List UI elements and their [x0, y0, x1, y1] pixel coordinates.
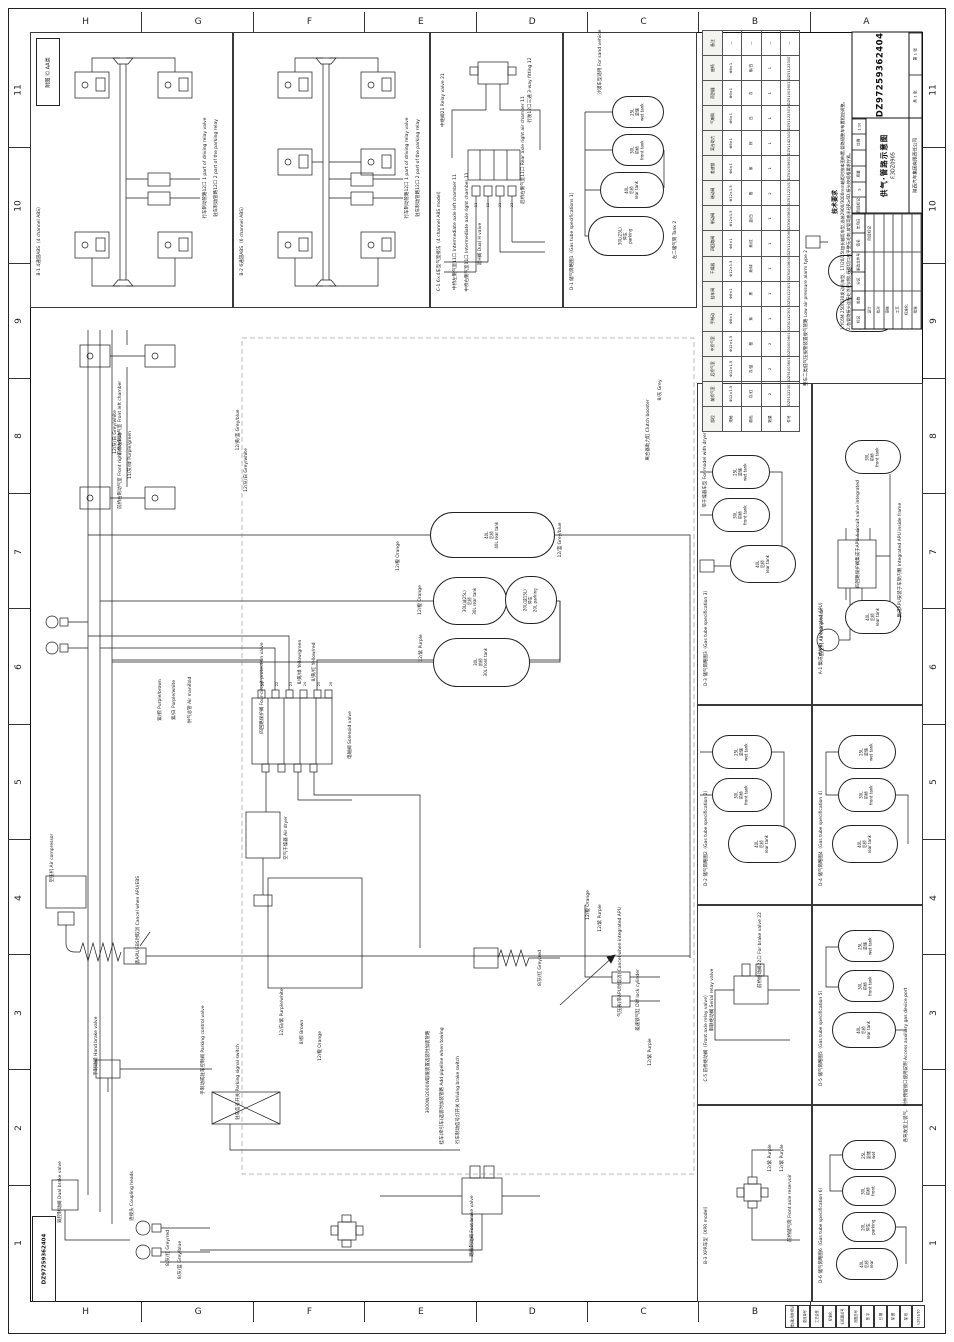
role-cell	[893, 214, 901, 252]
air-tank: 40L后桥rear tank	[728, 825, 796, 863]
parts-table-cell: Φ6×1	[723, 106, 742, 131]
parts-table-cell: Φ6×1	[723, 81, 742, 106]
strip-cell-label: 标准化	[827, 1312, 832, 1322]
parts-table-cell: Φ12×1.5	[723, 181, 742, 206]
strip-cell-label: 底图总号	[852, 1310, 857, 1323]
parts-table-cell: 灰/蓝	[742, 356, 761, 381]
parts-table-cell: 1	[761, 256, 780, 281]
parts-table-cell: 制动阀	[703, 206, 723, 231]
air-tank-label: 30L前桥front tank	[860, 785, 874, 805]
role-rows: 设计阶段标记校对审核工艺标准化批准	[866, 214, 922, 329]
panel-label-D-4: D-4 储气筒略图4（Gas tube specification 4）	[818, 788, 824, 886]
air-tank: 25L湿储wet tank	[838, 930, 894, 962]
parts-table-cell: 气喇叭	[703, 106, 723, 131]
rev-label: 更改文件号	[853, 252, 865, 271]
schematic-label: 12	[486, 203, 490, 207]
legend-text: 附图 Ⓒ AA类	[45, 57, 52, 87]
air-tank: 30L前桥front	[842, 1176, 896, 1206]
role-cell: 批准	[912, 290, 920, 328]
role-row: 工艺	[893, 214, 902, 329]
panel-label-D-3: D-3 储气筒略图3（Gas tube specification 3）	[703, 588, 709, 686]
schematic-label: 8/灰/红 Grey/red	[537, 950, 543, 986]
schematic-label: 挂车(牵引车)选装时加装管路 Add pipeline when towing	[439, 1027, 445, 1144]
parts-table-cell: DZ9114230101	[780, 306, 799, 331]
parts-table-cell: 1	[761, 81, 780, 106]
parts-table-cell: DZ9100360132	[780, 81, 799, 106]
schematic-label: 后桥右侧气室11口 Rear axle right air chamber 11	[520, 96, 526, 204]
parts-table-grid: 部位前桥气室后桥气室中桥气室手制动挂车阀干燥器四回路阀制动阀继动阀差速锁离合助力…	[702, 30, 800, 432]
schematic-label: 12/黄/蓝 Grey/blue	[235, 409, 241, 450]
schematic-label: 紫/白 Purple/white	[171, 680, 177, 720]
parts-table-cell: 中桥气室	[703, 331, 723, 356]
mid-value: 1:10	[853, 118, 866, 134]
strip-cell-label: 描 图	[891, 1313, 896, 1320]
parts-table-cell: Φ8×1	[723, 281, 742, 306]
air-tank-label: 25L湿储wet	[862, 1151, 876, 1159]
strip-cell-label: 签 字	[865, 1313, 870, 1320]
parts-table-cell: 2	[761, 331, 780, 356]
schematic-label: 行车制动管路12口 1 part of driving relay valve	[202, 117, 208, 218]
air-tank-label: 30L(25L)停车parking	[619, 227, 633, 245]
air-tank-label: 40L后桥rear tank	[866, 608, 880, 626]
schematic-label: 中桥左侧气室11口 Intermediate axle left chamber…	[452, 174, 458, 290]
schematic-label: 行车制动管路12口 1 part of driving relay valve	[404, 117, 410, 218]
schematic-label: 12/橙 Orange	[395, 541, 401, 571]
air-tank-label: 30L前桥front tank	[631, 140, 645, 160]
schematic-label: 12/灰/白 Grey/white	[112, 410, 118, 454]
parts-table-cell: 干燥器	[703, 256, 723, 281]
strip-cell: 更改单号	[798, 1305, 811, 1328]
panel-B-3	[697, 1105, 812, 1302]
air-tank-label: 40L后桥rear tank	[858, 835, 872, 853]
air-tank-label: 25L湿储wet tank	[735, 743, 749, 760]
schematic-label: 驻车制动管路12口 2 part of the parking relay	[213, 119, 219, 217]
parts-table-cell: 后桥气室	[703, 356, 723, 381]
strip-cell-label: 工艺会签	[814, 1310, 819, 1323]
panel-label-D-5: D-5 储气筒略图5（Gas tube specification 5）	[818, 988, 824, 1086]
parts-table-cell: DZ9112230132	[780, 281, 799, 306]
parts-table-cell: 1	[761, 306, 780, 331]
air-tank-label: 40L后桥rear tank	[756, 555, 770, 573]
parts-table-cell: 差速锁	[703, 156, 723, 181]
air-tank-label: 30L(或25L)后桥30L rear tank	[463, 588, 477, 615]
strip-cell-label: 更改单号	[802, 1310, 807, 1323]
parts-table-cell: 白	[742, 106, 761, 131]
strip-cell: 借(通)用件登记	[785, 1305, 798, 1328]
air-tank: 40L后桥rear tank	[832, 1012, 896, 1048]
parts-table-cell: 备注	[703, 31, 723, 56]
role-cell: 标准化	[903, 290, 911, 328]
strip-cell: 工艺会签	[810, 1305, 823, 1328]
schematic-label: 手制动或驻车控制阀 Parking control valve	[200, 1005, 206, 1094]
strip-cell-label: 日 期	[878, 1313, 883, 1320]
schematic-label: 各驾驶室上装气、附件预留接口使用说明 Access auxiliary gas …	[903, 988, 909, 1143]
schematic-label: 四回路保护阀 Four-circuit protection valve	[259, 642, 265, 733]
drawing-title: 供气·管路示意图 F.3DZ0905	[867, 118, 909, 212]
stage-quality-scale-row: 阶段标记S质量比例1:10	[853, 118, 867, 212]
role-row: 校对	[875, 214, 884, 329]
panel-A-1	[812, 383, 923, 705]
air-tank: 40L后桥rear tank	[600, 172, 664, 208]
parts-table-cell: 挂车阀	[703, 281, 723, 306]
parts-table-cell: DZ9112230176	[780, 181, 799, 206]
role-cell	[866, 252, 874, 290]
air-tank-label: 30L前桥30L front tank	[474, 648, 488, 676]
schematic-label: 四回路保护阀集成于APU 4-circuit valve integrated	[855, 480, 861, 588]
parts-table-cell: 数量	[761, 406, 780, 431]
strip-cell: L2021/10	[912, 1305, 925, 1328]
revision-header-row: 标记处数分区更改文件号签名年月日	[853, 214, 866, 329]
parts-table: 部位前桥气室后桥气室中桥气室手制动挂车阀干燥器四回路阀制动阀继动阀差速锁离合助力…	[702, 30, 800, 432]
parts-table-cell: 紫/白	[742, 56, 761, 81]
air-tank-label: 30L前桥front	[862, 1186, 876, 1196]
panel-label-B-1: B-1 4通道ABS（4 channel ABS）	[36, 204, 42, 275]
air-tank-label: 25L湿储wet tank	[734, 463, 748, 480]
schematic-label: 24	[303, 682, 307, 686]
schematic-label: 行驶12口三通 3-way fitting 12	[527, 57, 533, 122]
panel-C-1	[430, 32, 563, 308]
schematic-label: 连接头 Coupling heads	[129, 1171, 135, 1221]
strip-cell-label: L2021/10	[917, 1309, 921, 1324]
strip-cell: 描 图	[887, 1305, 900, 1328]
parts-table-cell: —	[780, 31, 799, 56]
air-tank: 25L湿储wet tank	[612, 96, 664, 128]
parts-table-cell: Φ12×1.5	[723, 356, 742, 381]
role-cell: 审核	[884, 290, 892, 328]
parts-table-cell: DZ9100360076	[780, 256, 799, 281]
air-tank: 40L后桥40L rear tank	[430, 512, 555, 558]
parts-table-cell: 四回路阀	[703, 231, 723, 256]
strip-cell: 签 字	[861, 1305, 874, 1328]
parts-table-cell: 黄/绿	[742, 256, 761, 281]
schematic-label: 手制动阀 Hand brake valve	[93, 1017, 99, 1076]
panel-B-2	[233, 32, 430, 308]
schematic-label: 沙漠车型适用 For sand vehicle	[597, 29, 603, 94]
parts-table-cell: Φ8×1	[723, 306, 742, 331]
panel-label-D-1: D-1 储气筒略图1（Gas tube specifications 1）	[569, 190, 575, 290]
schematic-label: 差速锁气缸 Diff lock cylinder	[635, 969, 641, 1031]
schematic-label: 双腔制动阀 Dual brake valve	[57, 1161, 63, 1223]
parts-table-cell: Φ12×1.5	[723, 381, 742, 406]
schematic-label: 电磁阀 Solenoid valve	[347, 711, 353, 759]
parts-table-cell: 1	[761, 131, 780, 156]
air-tank: 30L前桥front tank	[712, 778, 772, 812]
parts-table-cell: 1	[761, 281, 780, 306]
schematic-label: 12/紫 Purple	[418, 634, 424, 661]
parts-table-cell: 1	[761, 231, 780, 256]
schematic-label: 中桥右侧气室11口 Intermediate axle right chambe…	[464, 172, 470, 291]
panel-label-B-3: B-3 XPR车型（XPR model）	[703, 1204, 709, 1264]
parts-table-cell: —	[723, 31, 742, 56]
parts-table-cell: 雨刮器	[703, 81, 723, 106]
parts-table-cell: 2	[761, 181, 780, 206]
parts-table-cell: 前桥气室	[703, 381, 723, 406]
schematic-label: 气压表(带APU时取消) Cancel when integrated APU	[617, 907, 623, 1017]
rev-label: 签名	[853, 233, 865, 252]
role-cell	[875, 252, 883, 290]
role-cell: 阶段标记	[866, 214, 874, 252]
air-tank: 25L湿储wet tank	[712, 455, 770, 489]
air-tank-label: 30L前桥front tank	[734, 505, 748, 525]
schematic-label: 22	[510, 203, 514, 207]
parts-table-cell: Φ8×1	[723, 131, 742, 156]
schematic-label: 12/紫 Purple	[597, 904, 603, 931]
air-tank: 40L后桥rear	[836, 1248, 898, 1280]
schematic-label: 左二储气筒 Tank 2	[672, 221, 678, 259]
parts-table-cell: 1	[761, 106, 780, 131]
role-row: 设计阶段标记	[866, 214, 875, 329]
schematic-label: 8/灰/红 Grey/red	[165, 1230, 171, 1266]
air-tank-label: 30L前桥front tank	[866, 447, 880, 467]
schematic-label: 空压机 Air compressor	[819, 608, 825, 657]
schematic-label: 12/橙 Orange	[417, 585, 423, 615]
schematic-label: 前桥继动阀22口 For brake valve 22	[757, 912, 763, 988]
schematic-label: 12/蓝 Grey/blue	[557, 522, 563, 557]
legend-box: 附图 Ⓒ AA类	[36, 38, 60, 106]
parts-table-cell: DZ9100360113	[780, 356, 799, 381]
schematic-label: 8/棕 Brown	[299, 1020, 305, 1044]
role-cell	[884, 214, 892, 252]
corner-drawing-no: DZ97259362404	[41, 1234, 47, 1285]
air-tank: 30L前桥front tank	[838, 970, 894, 1002]
air-tank-label: 40L后桥40L rear tank	[485, 522, 499, 549]
schematic-label: 离合器助力缸 Clutch booster	[645, 399, 651, 460]
rev-label: 分区	[853, 271, 865, 290]
parts-table-cell: 灰/红	[742, 381, 761, 406]
parts-table-cell: 继动阀	[703, 181, 723, 206]
role-row: 批准	[912, 214, 921, 329]
air-tank: 20L停车parking	[842, 1212, 896, 1242]
mid-value: S	[853, 181, 866, 197]
parts-table-cell: 紫	[742, 306, 761, 331]
air-tank-label: 25L湿储wet tank	[631, 103, 645, 120]
air-tank: 30L前桥front tank	[712, 498, 770, 532]
air-tank-label: 25L湿储wet tank	[860, 743, 874, 760]
parts-table-cell: Φ12×1.5	[723, 256, 742, 281]
rev-label: 标记	[853, 309, 865, 328]
parts-table-cell: Φ12×1.5	[723, 331, 742, 356]
parts-table-cell: —	[761, 31, 780, 56]
parts-table-cell: 颜色	[742, 406, 761, 431]
mid-label: 质量	[853, 165, 866, 181]
parts-table-cell: 橙	[742, 331, 761, 356]
mid-value	[853, 150, 866, 166]
schematic-label: 驻车信号开关 Parking signal switch	[235, 1044, 241, 1120]
schematic-label: 驻车制动管路12口 2 part of the parking relay	[415, 119, 421, 217]
strip-cell: 描 校	[900, 1305, 913, 1328]
schematic-label: 整车二类低气压报警装置接气管路 Low air pressure alarm t…	[803, 250, 809, 386]
role-cell: 工艺	[893, 290, 901, 328]
strip-cell-label: 描 校	[903, 1313, 908, 1320]
parts-table-cell: DZ9160360131	[780, 206, 799, 231]
air-tank: 40L后桥rear tank	[832, 825, 898, 863]
parts-table-cell: DZ9112230076	[780, 56, 799, 81]
schematic-label: 21	[498, 203, 502, 207]
parts-table-cell: 2	[761, 356, 780, 381]
role-cell	[903, 214, 911, 252]
role-cell	[884, 252, 892, 290]
parts-table-cell: 紫	[742, 156, 761, 181]
schematic-label: 空气干燥器 Air dryer	[283, 816, 289, 860]
air-tank: 30L前桥front tank	[612, 134, 664, 166]
rev-label: 处数	[853, 290, 865, 309]
air-tank: 30L前桥30L front tank	[433, 638, 530, 687]
parts-table-cell: 离合助力	[703, 131, 723, 156]
parts-table-cell: DZ9100360158	[780, 331, 799, 356]
parts-table-cell: 黑	[742, 281, 761, 306]
schematic-label: 12/橙 Orange	[317, 1031, 323, 1061]
corner-drawing-no-box: DZ97259362404	[32, 1216, 56, 1302]
title-block: 标记处数分区更改文件号签名年月日 设计阶段标记校对审核工艺标准化批准 阶段标记S…	[852, 32, 923, 330]
engineering-drawing-sheet: { "sheet": { "drawing_no": "DZ9725936240…	[0, 0, 954, 1342]
parts-table-cell: 手制动	[703, 306, 723, 331]
title-block-number-zone: DZ97259362404 共 1 张 第 1 张	[853, 33, 922, 118]
schematic-label: 25	[317, 682, 321, 686]
schematic-label: 前桥储气筒 Front axle reservoir	[787, 1174, 793, 1242]
sheet-number: 第 1 张	[910, 33, 922, 75]
air-tank-label: 40L后桥rear tank	[755, 835, 769, 853]
air-tank-label: 30L前桥front tank	[859, 976, 873, 996]
air-tank-label: 25L湿储wet tank	[859, 937, 873, 954]
air-tank-label: 40L后桥rear tank	[857, 1021, 871, 1039]
role-row: 审核	[884, 214, 893, 329]
air-tank: 25L湿储wet	[842, 1140, 896, 1170]
parts-table-cell: 件号	[780, 406, 799, 431]
role-cell: 校对	[875, 290, 883, 328]
parts-table-cell: 1	[761, 156, 780, 181]
panel-label-B-2: B-2 6通道ABS（6 channel ABS）	[239, 204, 245, 275]
schematic-label: 12/紫 Purple	[767, 1144, 773, 1171]
schematic-label: 紫/棕 Purple/brown	[157, 679, 163, 721]
strip-cell: 底图总号	[849, 1305, 862, 1328]
parts-table-cell: Φ12×1.5	[723, 206, 742, 231]
role-cell	[912, 252, 920, 290]
schematic-label: 踏板制动阀 Foot brake valve	[469, 1195, 475, 1256]
parts-table-cell: 棕	[742, 131, 761, 156]
parts-table-cell: 座椅	[703, 56, 723, 81]
title-block-middle: 阶段标记S质量比例1:10 供气·管路示意图 F.3DZ0905 陕西汽车集团有…	[853, 117, 922, 212]
role-row: 标准化	[903, 214, 912, 329]
schematic-label: 供气总管 Air manifold	[187, 677, 193, 724]
air-tank: 40L后桥rear tank	[730, 545, 796, 583]
strip-cell-label: 旧底图总号	[840, 1309, 845, 1325]
schematic-label: 11/灰/绿 Purple/green	[127, 431, 133, 479]
schematic-label: 双H阀 Dual H valve	[477, 223, 483, 266]
parts-table-cell: Φ6×1	[723, 156, 742, 181]
panel-D-1	[563, 32, 697, 308]
rev-label: 年月日	[853, 214, 865, 233]
schematic-label: 装APU/EBS时取消 Cancel when APU/EBS	[135, 876, 141, 964]
parts-table-cell: 规格	[723, 406, 742, 431]
schematic-label: 空压机 Air compressor	[49, 834, 55, 883]
parts-table-cell: DZ9112230176	[780, 381, 799, 406]
parts-table-cell: 灰	[742, 81, 761, 106]
drawing-title-cn: 供气·管路示意图	[879, 134, 890, 197]
strip-cell: 标准化	[823, 1305, 836, 1328]
drawing-title-code: F.3DZ0905	[891, 152, 897, 179]
schematic-label: 3000W/2000W取暖装置选装时加装管路	[425, 1031, 431, 1114]
role-cell: 设计	[866, 290, 874, 328]
note-line: 1.YC6M 250/330发动机车型、17/20/25t加长轴距车型,选装29…	[840, 74, 846, 330]
strip-cell: 日 期	[874, 1305, 887, 1328]
parts-table-cell: DZ9112230901	[780, 231, 799, 256]
schematic-label: 26	[329, 682, 333, 686]
air-tank: 25L湿储wet tank	[712, 735, 772, 769]
air-tank: 30L前桥front tank	[845, 440, 901, 474]
schematic-label: 22	[275, 682, 279, 686]
schematic-label: 12/橙 Orange	[585, 890, 591, 920]
schematic-label: 12/灰/白 Grey/white	[243, 448, 249, 492]
role-cell	[875, 214, 883, 252]
parts-table-cell: Φ8×1	[723, 231, 742, 256]
schematic-label: 中继阀21 Relay valve 21	[440, 73, 446, 127]
strip-cell-label: 借(通)用件登记	[789, 1306, 794, 1328]
schematic-label: 集成APU安装于车架内侧 Integrated APU inside frame	[897, 503, 903, 618]
schematic-label: 8/黄/绿 Yellow/green	[297, 640, 303, 685]
parts-table-cell: 2	[761, 381, 780, 406]
parts-table-cell: DZ9114230158	[780, 131, 799, 156]
air-tank-label: 20L(或15L)停车20L parking	[524, 588, 538, 612]
schematic-label: 8/灰 Grey	[657, 380, 663, 401]
sheet-count: 共 1 张	[910, 75, 922, 117]
air-tank: 40L后桥rear tank	[845, 600, 901, 634]
schematic-label: 带干燥器车型 For model with dryer	[702, 432, 708, 507]
parts-table-cell: 黄/红	[742, 231, 761, 256]
mid-label: 阶段标记	[853, 197, 866, 213]
role-cell	[903, 252, 911, 290]
panel-label-C-1: C-1 6×4车型气室接法（4 channel ABS model）	[436, 189, 442, 291]
parts-table-cell: 橙	[742, 181, 761, 206]
schematic-label: 8/灰/蓝 Grey/blue	[177, 1241, 183, 1279]
schematic-label: 8/黄/红 Yellow/red	[311, 642, 317, 681]
drawing-number: DZ97259362404	[853, 33, 909, 118]
parts-table-cell: 1	[761, 56, 780, 81]
mid-label: 比例	[853, 134, 866, 150]
notes-heading: 技术要求	[830, 74, 839, 330]
air-tank-label: 30L前桥front tank	[735, 785, 749, 805]
parts-table-cell: DZ9112230101	[780, 106, 799, 131]
schematic-label: 12/紫 Purple	[647, 1038, 653, 1065]
parts-table-cell: Φ8×1	[723, 56, 742, 81]
air-tank: 30L(或25L)后桥30L rear tank	[433, 577, 507, 625]
role-cell	[912, 214, 920, 252]
parts-table-cell: DZ9100360113	[780, 156, 799, 181]
panel-label-D-6: D-6 储气筒略图6（Gas tube specification 6）	[818, 1185, 824, 1283]
parts-table-cell: 部位	[703, 406, 723, 431]
schematic-label: 21	[261, 682, 265, 686]
strip-cell: 旧底图总号	[836, 1305, 849, 1328]
schematic-label: 12/白/紫 Purple/white	[279, 988, 285, 1035]
schematic-label: 23	[289, 682, 293, 686]
schematic-label: 行车制动信号灯开关 Driving brake switch	[455, 1056, 461, 1144]
schematic-label: 12/紫 Purple	[779, 1144, 785, 1171]
air-tank: 25L湿储wet tank	[838, 735, 896, 769]
air-tank: 30L(25L)停车parking	[588, 216, 664, 256]
parts-table-cell: 蓝/白	[742, 206, 761, 231]
role-cell	[893, 252, 901, 290]
air-tank: 30L前桥front tank	[838, 778, 896, 812]
air-tank-label: 20L停车parking	[862, 1219, 876, 1234]
air-tank-label: 40L后桥rear	[860, 1260, 874, 1268]
parts-table-cell: —	[742, 31, 761, 56]
air-tank-label: 40L后桥rear tank	[625, 181, 639, 199]
schematic-label: 串联继动阀 Serial relay valve	[709, 969, 715, 1032]
schematic-label: 11	[474, 203, 478, 207]
title-block-signatures: 标记处数分区更改文件号签名年月日 设计阶段标记校对审核工艺标准化批准	[853, 213, 922, 329]
company-name: 陕西汽车集团有限责任公司	[909, 118, 922, 212]
air-tank: 20L(或15L)停车20L parking	[505, 576, 557, 624]
panel-label-D-2: D-2 储气筒略图2（Gas tube specification 2）	[703, 788, 709, 886]
